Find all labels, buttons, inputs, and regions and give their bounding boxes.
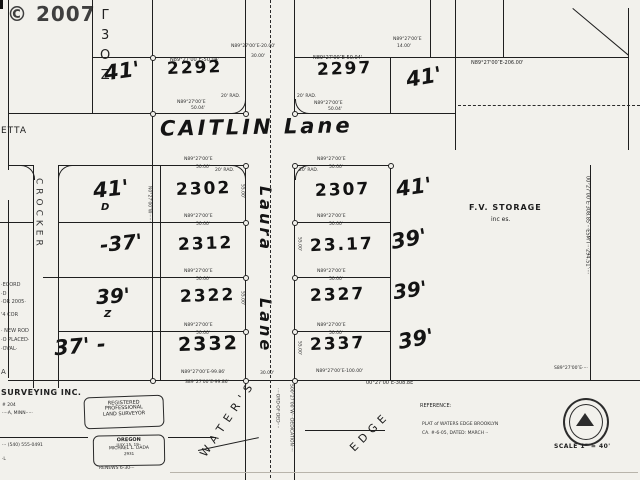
bearing-label: N89°27'00″E [317, 215, 346, 220]
oregon-stamp-line: 2931 [94, 452, 164, 457]
corner-marker [292, 111, 298, 117]
handwritten-width-note: 39' [396, 325, 435, 353]
scale-label: SCALE 1″ = 40' [554, 444, 611, 450]
street-label-crocker: CROCKER [33, 178, 42, 250]
bearing-label: S89°27'00″E-99.86' [185, 381, 229, 386]
corner-marker [292, 329, 298, 335]
corner-marker [243, 111, 249, 117]
surveyor-address: # 204 [2, 404, 16, 409]
margin-note: ·OVAL· [1, 347, 17, 352]
boundary-line [572, 8, 629, 56]
boundary-line [8, 200, 9, 378]
handwritten-letter: Z [104, 310, 111, 321]
bearing-label: 30.00' [260, 372, 274, 377]
handwritten-width-note: 41' [404, 63, 443, 91]
boundary-line [33, 165, 34, 388]
parcel-label-fv-storage: F.V. STORAGE [469, 204, 542, 212]
bearing-label: N89°27'00″E [317, 158, 346, 163]
boundary-line [295, 113, 455, 114]
parcel-label-fv-storage-sub: inc es. [491, 217, 510, 223]
lot-number-2307: 2307 [315, 181, 371, 201]
boundary-line [8, 113, 245, 114]
street-label-caitlin: CAITLIN Lane [160, 114, 353, 139]
bearing-label: N89°27'00″E [317, 270, 346, 275]
lot-number-2322: 2322 [180, 287, 236, 307]
surveyor-address: ····A, MINN····· [2, 412, 33, 417]
edge-length-label: 55.00' [296, 237, 301, 251]
boundary-line-dashed [458, 105, 640, 106]
bearing-label: N89°27'00″E [184, 215, 213, 220]
margin-note: A [1, 369, 6, 376]
corner-marker [150, 111, 156, 117]
boundary-line [590, 165, 591, 380]
boundary-line [295, 331, 390, 332]
margin-note: '4 COR [1, 313, 18, 318]
bearing-label: N89°27'00″E [177, 101, 206, 106]
corner-marker [292, 163, 298, 169]
bearing-label: N89°27'00″E [184, 158, 213, 163]
handwritten-width-note: -37' [99, 231, 143, 256]
boundary-bearing-strip: 00°27'00″E·308.85'···ESM'T···294.51'···· [584, 176, 589, 274]
corner-marker [150, 378, 156, 384]
boundary-line [295, 277, 390, 278]
oregon-stamp: OREGON JULY 15, 19·· MICHAEL L. DADA 293… [93, 434, 166, 466]
bearing-label: 50.00' [196, 332, 210, 337]
corner-marker [292, 378, 298, 384]
bearing-label: N89°27'00″E [393, 38, 422, 43]
lot-number-2302: 2302 [176, 180, 232, 200]
boundary-line [8, 380, 640, 381]
scan-artifact [170, 472, 638, 473]
boundary-line [168, 437, 216, 438]
bearing-label: N89°27'00″E-206.00' [471, 61, 523, 66]
lot-number-2337: 2337 [310, 335, 366, 355]
handwritten-width-note: 39' [392, 278, 429, 304]
bearing-label: 50.00' [196, 166, 210, 171]
boundary-line [8, 0, 9, 170]
surveyor-seal-icon [563, 398, 609, 446]
boundary-line [92, 57, 245, 58]
seal-mountain-icon [576, 413, 594, 426]
boundary-line [295, 222, 390, 223]
handwritten-width-note: 41' [103, 58, 141, 85]
registered-stamp: REGISTERED PROFESSIONAL LAND SURVEYOR [83, 395, 164, 430]
margin-note: ·O PLACED· [1, 338, 29, 343]
handwritten-width-note: 41' [395, 174, 433, 201]
reference-note: PLAT of WATERS EDGE BROOKLYN [422, 423, 498, 428]
bearing-label: N89°27'00″E [184, 270, 213, 275]
corner-marker [150, 55, 156, 61]
margin-note: ·OR 2005· [1, 300, 26, 305]
boundary-line [455, 0, 456, 150]
bearing-label: 50.00' [329, 223, 343, 228]
bearing-label: N89°27'00″E [314, 102, 343, 107]
bearing-label: N89°27'00″E [184, 324, 213, 329]
corner-marker [243, 275, 249, 281]
edge-length-label: 55.00' [239, 184, 244, 198]
boundary-line [430, 0, 431, 57]
surveyor-note: ·L [2, 458, 6, 463]
boundary-line [305, 430, 385, 431]
street-label-etta: ETTA [1, 127, 27, 136]
street-label-waters: WATER'S [198, 378, 258, 459]
bearing-label: 50.04' [191, 107, 205, 112]
surveyor-company: SURVEYING INC. [1, 389, 81, 397]
bearing-label: N89°27'00″E-50.04' [170, 58, 219, 63]
stamp-renewal-note: RENEWS 6-30-·· [99, 467, 135, 472]
handwritten-width-note: 39' [95, 285, 130, 308]
boundary-line [58, 165, 59, 388]
boundary-line [295, 57, 628, 58]
reference-note: CA. #-6-05, DATED: MARCH ·· [422, 432, 488, 437]
corner-marker [243, 329, 249, 335]
corner-marker [243, 220, 249, 226]
surveyor-phone: ··· (540) 555-0491 [2, 444, 43, 449]
corner-marker [243, 163, 249, 169]
bearing-label: 14.00' [397, 45, 411, 50]
street-label-edge: EDGE [348, 410, 392, 454]
margin-note: ·ECORD [1, 283, 21, 288]
lot-number-2297: 2297 [317, 60, 373, 80]
lot-edge-bearing-strip: N0°27'00″W······· [146, 186, 151, 223]
bearing-label: N89°27'00″E-20.00' [231, 45, 275, 50]
boundary-line [245, 0, 246, 113]
boundary-line [245, 165, 246, 480]
margin-note: · NEW ROD [1, 329, 29, 334]
boundary-line [160, 165, 161, 380]
bearing-label: 30.00' [251, 55, 265, 60]
boundary-line [92, 0, 93, 113]
boundary-line [0, 222, 33, 223]
lot-number-2327: 2327 [310, 286, 366, 306]
road-centerline [270, 0, 271, 478]
edge-length-label: 55.00' [239, 291, 244, 305]
handwritten-letter: D [101, 203, 109, 214]
boundary-line [294, 165, 295, 480]
bearing-label: 00°27'00″E-308.8E [366, 381, 413, 386]
bearing-label: N89°27'00″E-100.00' [316, 370, 363, 375]
boundary-line [43, 277, 58, 278]
boundary-line [390, 165, 391, 380]
corner-marker [292, 275, 298, 281]
bearing-label: 50.00' [196, 223, 210, 228]
road-dedication-strip: ····ORD·OF·DED···· [274, 388, 279, 428]
handwritten-width-note: 37' - [53, 333, 106, 359]
corner-marker [243, 378, 249, 384]
plat-map: © 2007 Γ3OZ CAITLIN Lane Laura Lane CROC… [0, 0, 640, 480]
handwritten-width-note: 41' [92, 176, 130, 202]
reference-note: REFERENCE: [420, 404, 451, 409]
scan-artifact [0, 0, 3, 9]
bearing-label: 50.00' [196, 278, 210, 283]
corner-marker [388, 163, 394, 169]
boundary-line [628, 8, 629, 150]
margin-note: ·D [1, 292, 6, 297]
bearing-label: N89°27'00″E [317, 324, 346, 329]
edge-length-label: 55.00' [296, 341, 301, 355]
handwritten-width-note: 39' [389, 225, 428, 253]
bearing-label: 50.00' [329, 332, 343, 337]
bearing-label: 50.00' [329, 166, 343, 171]
bearing-label: N89°27'00″E-99.86' [181, 371, 225, 376]
copyright-watermark: © 2007 [7, 4, 96, 25]
lot-number-2332: 2332 [178, 334, 240, 356]
bearing-label: 50.04' [328, 108, 342, 113]
boundary-line [0, 437, 88, 438]
boundary-line [390, 57, 391, 113]
road-dedication-strip: S00°27'00″W···DEDICATION···· [288, 384, 293, 452]
bearing-label: 50.00' [329, 278, 343, 283]
lot-number-2312: 2312 [178, 235, 234, 255]
lot-number-2317: 23.17 [310, 236, 374, 256]
bearing-label: S89°27'00″E···· [554, 367, 588, 372]
corner-arc [58, 165, 73, 180]
corner-marker [292, 220, 298, 226]
boundary-line [503, 0, 504, 57]
boundary-line [294, 0, 295, 113]
